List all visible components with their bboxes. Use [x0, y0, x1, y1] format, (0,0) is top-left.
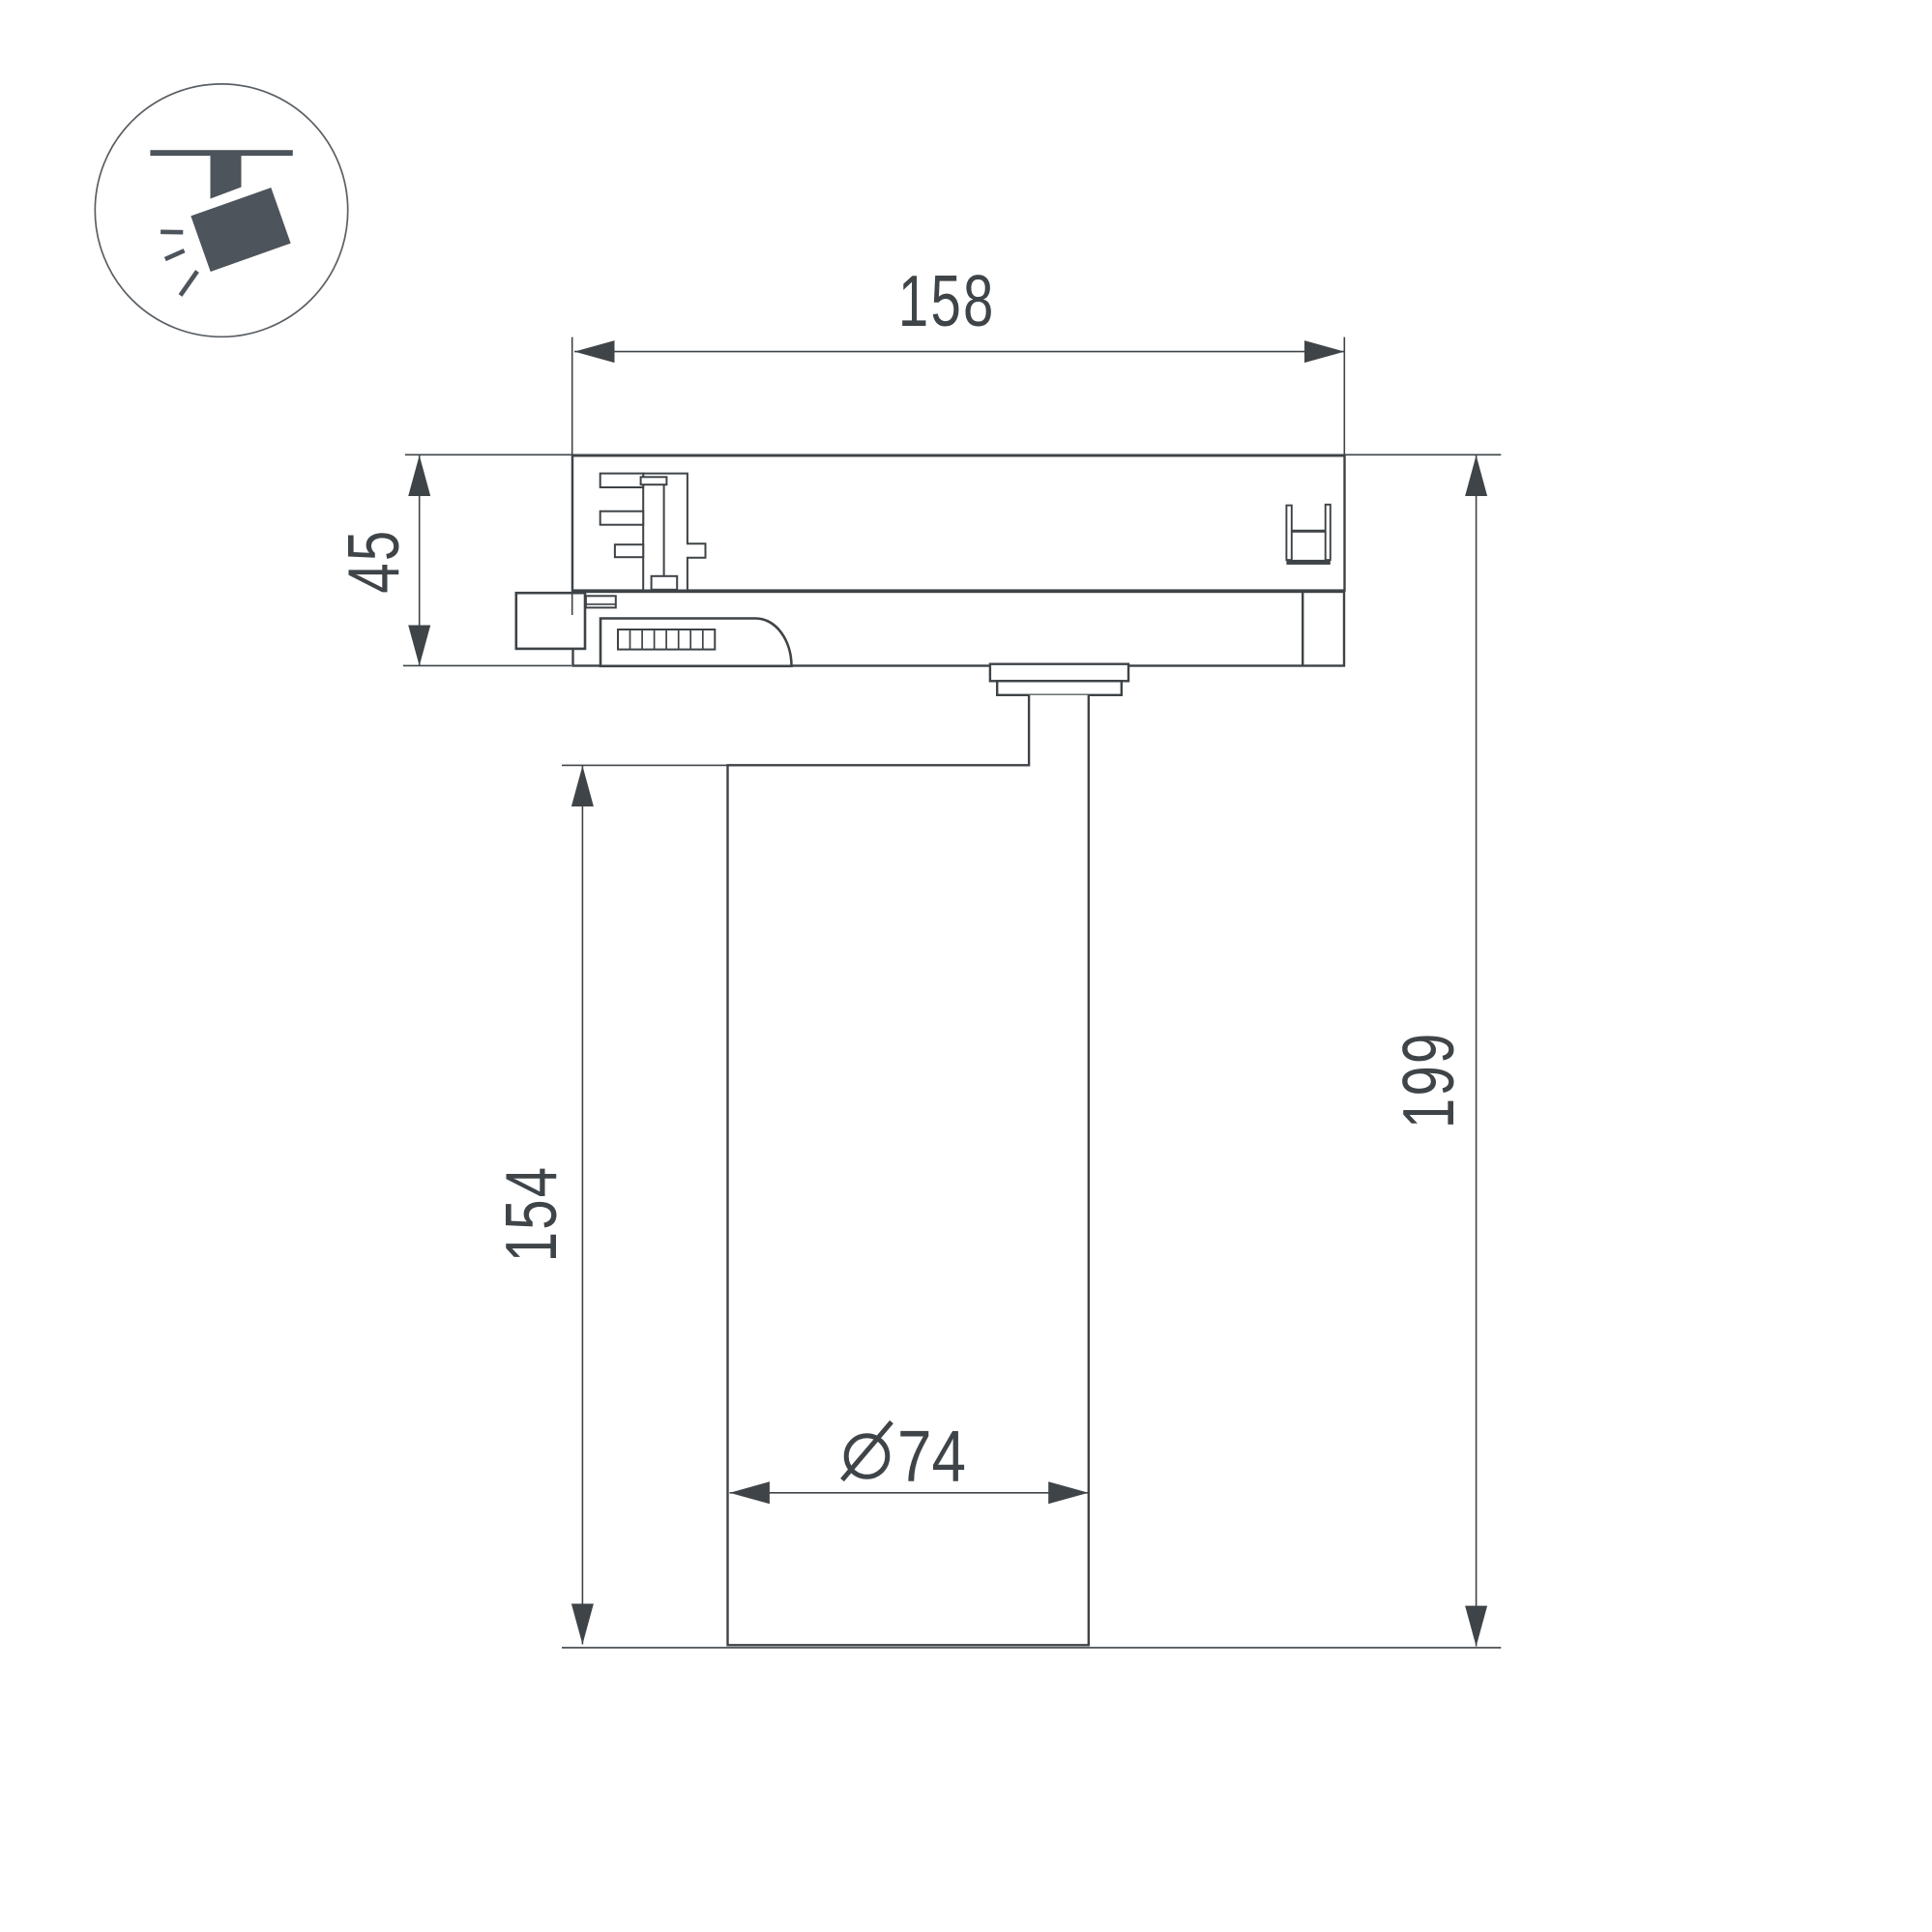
- svg-text:199: 199: [1389, 1032, 1470, 1129]
- svg-text:45: 45: [334, 529, 415, 594]
- svg-text:74: 74: [897, 1416, 966, 1497]
- svg-text:154: 154: [491, 1165, 572, 1263]
- svg-text:158: 158: [898, 261, 996, 342]
